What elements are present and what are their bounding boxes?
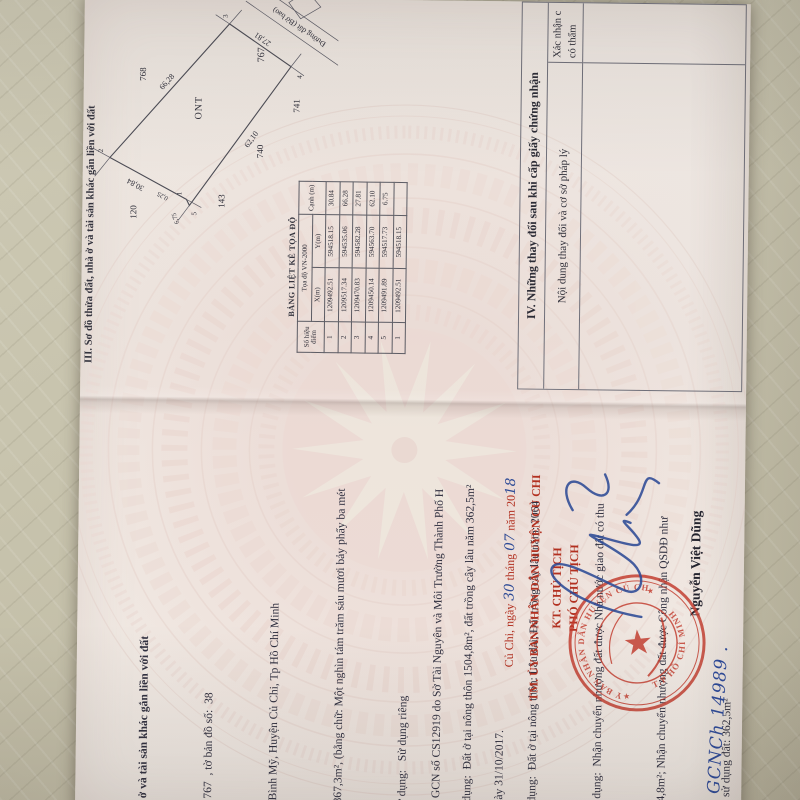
cell-y: 594517.73 — [379, 215, 393, 269]
edge-length-2-3: 66,28 — [158, 72, 177, 91]
cell-x: 1209450.14 — [365, 269, 379, 323]
cell-y: 594535.06 — [339, 215, 353, 269]
col-header-x: X(m) — [311, 268, 325, 322]
edge-length-3-4: 27,81 — [253, 31, 273, 49]
section4-col2-line2: có thẩm — [565, 3, 581, 58]
handwritten-day: 30 — [502, 583, 518, 600]
date-nam: năm 20 — [503, 495, 517, 534]
signature-ink — [529, 449, 676, 636]
cell-x: 1209470.83 — [351, 268, 365, 322]
cell-x: 1209492.51 — [392, 269, 406, 323]
vertex-4-label: 4 — [296, 75, 304, 79]
section4-empty-cell-left — [579, 62, 745, 391]
certificate-document: à ở và tài sản khác gắn liền với đất : 7… — [0, 0, 800, 800]
cell-edge: 6.75 — [380, 182, 394, 215]
vertex-2-label: 2 — [97, 148, 105, 152]
vertex-3-label: 3 — [222, 14, 230, 18]
cell-point: 2 — [338, 322, 352, 353]
neighbor-parcel-741: 741 — [292, 99, 302, 113]
section4-col1-header: Nội dung thay đổi và cơ sở pháp lý — [544, 62, 582, 389]
section4-col2-line1: Xác nhận c — [550, 3, 566, 58]
cell-y: 594582.28 — [352, 215, 366, 269]
cell-x: 1209491.89 — [378, 269, 392, 323]
edge-length-1-2: 30,84 — [125, 176, 145, 193]
neighbor-parcel-768: 768 — [138, 67, 148, 81]
cell-edge: 62.10 — [366, 182, 380, 215]
address-line: ã Bình Mỹ, Huyện Củ Chi, Tp Hồ Chí Minh — [262, 456, 288, 800]
section4-empty-rows — [579, 3, 746, 391]
date-thang: tháng — [503, 551, 517, 584]
cell-point: 1 — [324, 322, 338, 353]
neighbor-parcel-143: 143 — [216, 194, 226, 208]
section4-col2-header: Xác nhận c có thẩm — [548, 3, 583, 62]
area-line: 1867,3m², (bằng chữ: Một nghìn tám trăm … — [327, 457, 353, 800]
vertex-1-label: 1 — [175, 191, 183, 195]
cell-point: 3 — [351, 322, 365, 353]
spacer — [780, 463, 792, 800]
cell-edge — [393, 182, 407, 215]
cell-y: 594563.70 — [366, 215, 380, 269]
paper-sheet: à ở và tài sản khác gắn liền với đất : 7… — [75, 0, 751, 800]
photo-stage: à ở và tài sản khác gắn liền với đất : 7… — [0, 0, 800, 800]
cell-point: 4 — [365, 322, 379, 353]
cell-x: 1209492.51 — [324, 268, 338, 322]
handwritten-month: 07 — [502, 534, 518, 551]
parcel-sketch-diagram: ONT 767 30,84 66,28 27,81 62,10 6,75 0,2… — [82, 0, 339, 255]
section2-heading-fragment: à ở và tài sản khác gắn liền với đất — [132, 455, 158, 800]
land-use-label: ONT — [193, 96, 204, 120]
cell-edge: 27.81 — [353, 182, 367, 215]
handwritten-year: 18 — [503, 478, 519, 495]
issue-date-line: Củ Chi, ngày 30 tháng 07 năm 2018 — [501, 407, 520, 667]
parcel-number-line: : 767 , tờ bản đồ số: 38 — [197, 456, 223, 800]
cell-point: 1 — [392, 322, 406, 353]
cell-y: 594518.15 — [393, 215, 407, 269]
offset-length: 0,25 — [156, 190, 169, 202]
adjacent-fragment — [289, 0, 321, 19]
col-header-point: Số hiệu điểm — [297, 321, 324, 352]
section4-header-row: Nội dung thay đổi và cơ sở pháp lý Xác n… — [544, 3, 584, 389]
gcn-origin-line: từ GCN số CS12919 do Sở Tài Nguyên và Mô… — [425, 458, 450, 800]
parcel-number-label: 767 — [256, 47, 267, 62]
neighbor-parcel-120: 120 — [128, 205, 138, 219]
neighbor-parcel-740: 740 — [255, 144, 265, 158]
edge-length-5-1: 6,75 — [171, 212, 181, 225]
table-row: 1 1209492.51 594518.15 — [392, 182, 408, 353]
cell-point: 5 — [378, 322, 392, 353]
section4-changes-table: IV. Những thay đổi sau khi cấp giấy chứn… — [517, 1, 747, 392]
cell-x: 1209517.34 — [338, 268, 352, 322]
vertex-5-label: 5 — [190, 211, 198, 215]
date-place: Củ Chi, ngày — [502, 601, 517, 668]
stamp-star-left-icon: ★ — [621, 692, 631, 701]
cell-edge: 66.28 — [339, 182, 353, 215]
